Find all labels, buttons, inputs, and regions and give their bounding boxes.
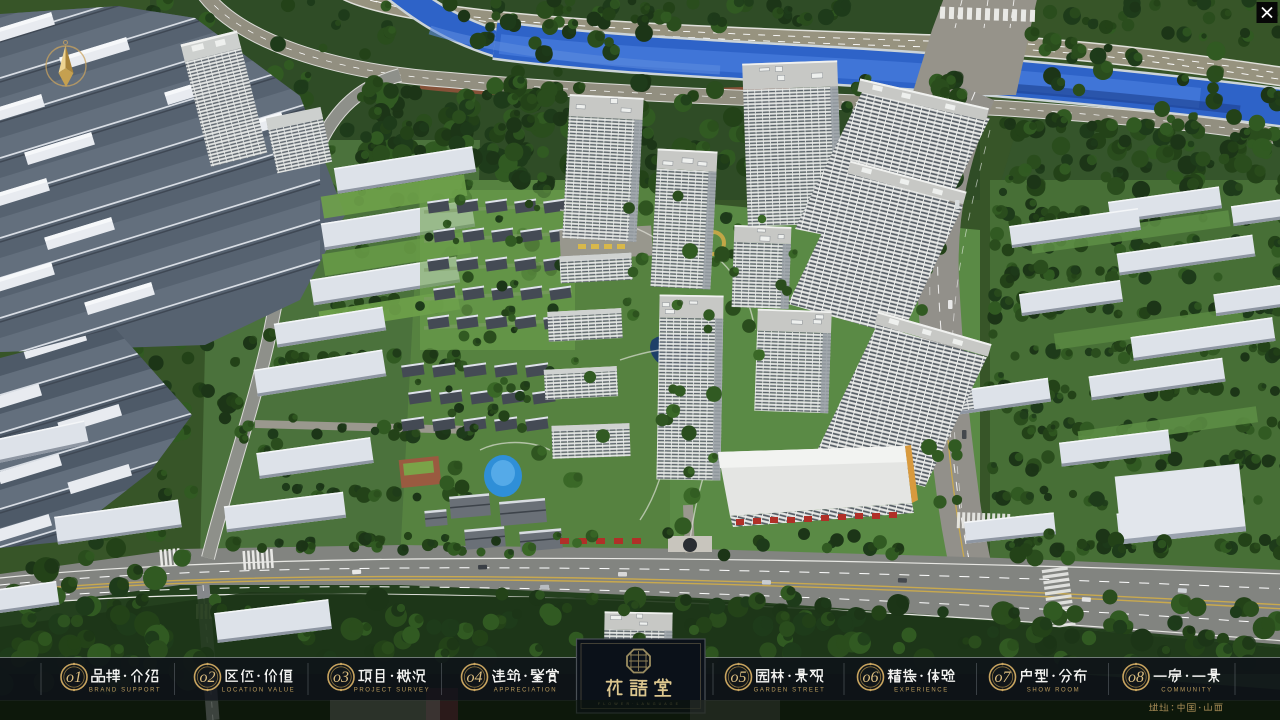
- svg-text:BRAND SUPPORT: BRAND SUPPORT: [89, 688, 161, 694]
- svg-text:PROJECT SURVEY: PROJECT SURVEY: [354, 688, 431, 694]
- svg-text:o8: o8: [1128, 669, 1144, 686]
- svg-text:o1: o1: [66, 669, 82, 686]
- svg-text:APPRECIATION: APPRECIATION: [494, 688, 557, 694]
- svg-text:EXPERIENCE: EXPERIENCE: [894, 688, 949, 694]
- svg-text:o3: o3: [333, 669, 349, 686]
- svg-text:o7: o7: [995, 669, 1012, 686]
- svg-text:o2: o2: [200, 669, 216, 686]
- svg-text:o4: o4: [467, 669, 483, 686]
- svg-text:GARDEN STREET: GARDEN STREET: [754, 688, 826, 694]
- svg-text:LOCATION VALUE: LOCATION VALUE: [222, 688, 296, 694]
- svg-text:o6: o6: [863, 669, 879, 686]
- svg-text:SHOW ROOM: SHOW ROOM: [1027, 688, 1080, 694]
- svg-text:o5: o5: [731, 669, 747, 686]
- svg-text:COMMUNITY: COMMUNITY: [1161, 688, 1212, 694]
